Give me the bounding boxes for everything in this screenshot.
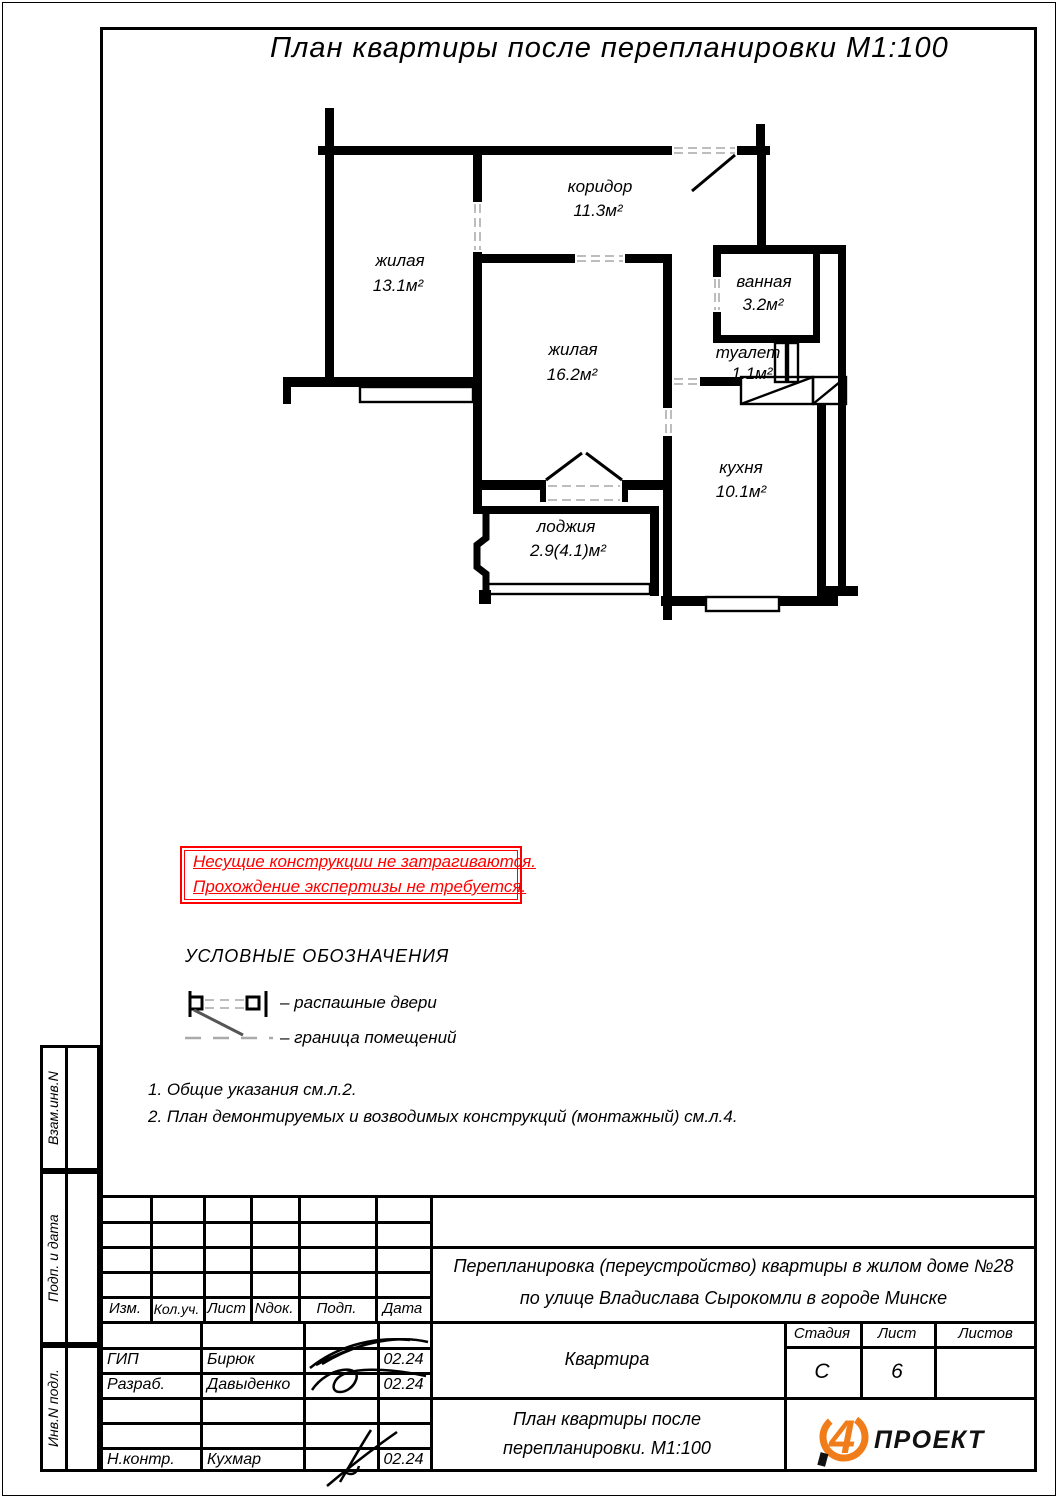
staff-role-gip: ГИП (100, 1347, 200, 1372)
room-area: 13.1м² (373, 276, 425, 295)
warning-line-2: Прохождение экспертизы не требуется. (193, 875, 509, 900)
warning-box: Несущие конструкции не затрагиваются. Пр… (180, 846, 522, 904)
room-area: 1.1м² (732, 364, 774, 383)
room-label: лоджия (536, 517, 596, 536)
grid-line (100, 1246, 1037, 1249)
grid-line (298, 1196, 301, 1321)
room-label: туалет (716, 343, 781, 362)
grid-line (100, 1347, 430, 1350)
project-description-line-2: по улице Владислава Сырокомли в городе М… (430, 1280, 1037, 1316)
note-1: 1. Общие указания см.л.2. (148, 1080, 357, 1100)
grid-line (100, 1372, 430, 1375)
room-area: 2.9(4.1)м² (529, 541, 607, 560)
staff-date-nkontr: 02.24 (377, 1447, 430, 1472)
floor-plan: жилая 13.1м² коридор 11.3м² ванная 3.2м²… (280, 100, 865, 630)
grid-line (100, 1321, 1037, 1324)
staff-name-gip: Бирюк (200, 1347, 303, 1372)
staff-date-razrab: 02.24 (377, 1372, 430, 1397)
header-cell-ndok: Nдок. (250, 1296, 298, 1321)
stage-value: С (784, 1346, 860, 1397)
room-label: жилая (374, 251, 424, 270)
header-cell-data: Дата (375, 1296, 430, 1321)
warning-line-1: Несущие конструкции не затрагиваются. (193, 850, 509, 875)
grid-line (934, 1321, 937, 1397)
company-logo: 4 ПРОЕКТ (787, 1400, 1034, 1469)
stage-label: Стадия (784, 1321, 860, 1346)
grid-line (100, 1195, 1037, 1198)
header-cell-list: Лист (203, 1296, 250, 1321)
room-label: кухня (719, 458, 762, 477)
grid-line (203, 1196, 206, 1321)
project-description-line-1: Перепланировка (переустройство) квартиры… (430, 1248, 1037, 1284)
header-cell-koluch: Кол.уч. (150, 1296, 203, 1321)
room-label: жилая (547, 340, 597, 359)
company-logo-icon: 4 ПРОЕКТ (806, 1402, 1016, 1468)
header-cell-podp: Подп. (298, 1296, 375, 1321)
sheets-label: Листов (934, 1321, 1037, 1346)
page-title: План квартиры после перепланировки М1:10… (270, 32, 920, 65)
grid-line (100, 1422, 430, 1425)
staff-name-nkontr: Кухмар (200, 1447, 303, 1472)
grid-line (150, 1196, 153, 1321)
legend-label-boundary: – граница помещений (280, 1028, 456, 1048)
legend-label-doors: – распашные двери (280, 993, 437, 1013)
sheet-label: Лист (860, 1321, 934, 1346)
grid-line (860, 1321, 863, 1397)
room-label: ванная (736, 272, 791, 291)
legend-title: УСЛОВНЫЕ ОБОЗНАЧЕНИЯ (185, 946, 449, 967)
warning-box-inner: Несущие конструкции не затрагиваются. Пр… (184, 850, 518, 900)
room-area: 11.3м² (573, 201, 623, 220)
grid-line (784, 1346, 1037, 1349)
staff-date-gip: 02.24 (377, 1347, 430, 1372)
logo-text: ПРОЕКТ (874, 1426, 986, 1454)
grid-line (375, 1196, 378, 1321)
sheets-value (934, 1346, 1037, 1397)
object-name: Квартира (430, 1321, 784, 1397)
room-area: 10.1м² (716, 482, 768, 501)
note-2: 2. План демонтируемых и возводимых конст… (148, 1107, 738, 1127)
drawing-title-line-2: перепланировки. М1:100 (430, 1432, 784, 1464)
grid-line (65, 1171, 68, 1345)
sidebar-label-vzam: Взам.инв.N (40, 1045, 66, 1171)
staff-name-razrab: Давыденко (200, 1372, 303, 1397)
grid-line (250, 1196, 253, 1321)
sidebar-label-podp: Подп. и дата (40, 1171, 66, 1345)
grid-line (100, 1447, 430, 1450)
staff-role-nkontr: Н.контр. (100, 1447, 200, 1472)
logo-a-glyph: 4 (828, 1410, 855, 1463)
staff-role-razrab: Разраб. (100, 1372, 200, 1397)
loggia-wall (477, 514, 486, 592)
room-label: коридор (568, 177, 633, 196)
grid-line (200, 1321, 203, 1472)
grid-line (100, 1397, 1037, 1400)
drawing-title-line-1: План квартиры после (430, 1403, 784, 1435)
grid-line (430, 1196, 433, 1472)
drawing-sheet: План квартиры после перепланировки М1:10… (0, 0, 1060, 1500)
room-area: 3.2м² (743, 295, 785, 314)
grid-line (65, 1345, 68, 1472)
sheet-value: 6 (860, 1346, 934, 1397)
grid-line (303, 1321, 306, 1472)
sidebar-label-inv: Инв.N подл. (40, 1345, 66, 1472)
grid-line (377, 1321, 380, 1472)
grid-line (784, 1321, 787, 1472)
room-area: 16.2м² (547, 365, 599, 384)
header-cell-izm: Изм. (100, 1296, 150, 1321)
grid-line (65, 1045, 68, 1171)
